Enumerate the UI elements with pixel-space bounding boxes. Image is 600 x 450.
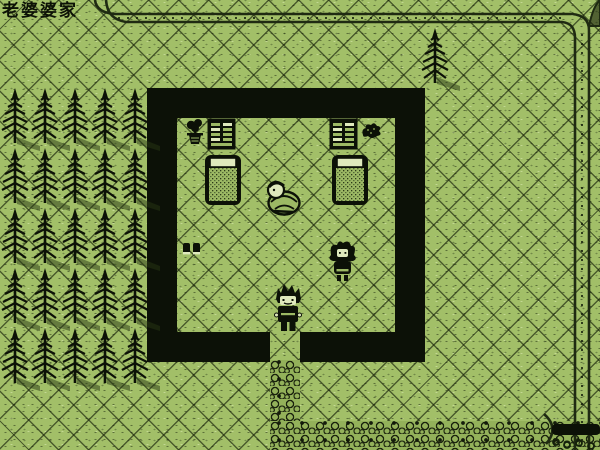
shoes-item[interactable] [182, 241, 201, 257]
bed-icon [331, 154, 369, 206]
girl-sprite [327, 239, 358, 283]
pine-tree [120, 148, 168, 212]
wall-top [147, 88, 425, 118]
player-sprite [271, 282, 305, 332]
granny-npc[interactable] [261, 178, 303, 216]
bookshelf-left[interactable] [207, 118, 236, 150]
bed-icon [204, 154, 242, 206]
shrub-icon [360, 121, 382, 139]
dark-shrub [360, 121, 382, 139]
bookshelf-icon [207, 118, 236, 150]
pine-tree-lone [420, 28, 468, 92]
bookshelf-right[interactable] [329, 118, 358, 150]
bonsai-plant[interactable] [184, 118, 206, 146]
location-title: 老婆婆家 [2, 0, 78, 22]
granny-sprite [261, 178, 303, 216]
cobblestone-road[interactable] [270, 421, 600, 450]
bed-right[interactable] [331, 154, 369, 206]
pine-tree [120, 208, 168, 272]
wall-bottom-right [300, 332, 425, 362]
wall-right [395, 118, 425, 332]
pine-tree [120, 268, 168, 332]
bonsai-plant-icon [184, 118, 206, 146]
shoes-icon [182, 241, 201, 257]
bookshelf-icon [329, 118, 358, 150]
girl-npc[interactable] [327, 239, 358, 283]
pine-tree [120, 88, 168, 152]
pine-tree [120, 328, 168, 392]
player-character[interactable] [271, 282, 305, 332]
bed-left[interactable] [204, 154, 242, 206]
game-viewport: 老婆婆家 [0, 0, 600, 450]
